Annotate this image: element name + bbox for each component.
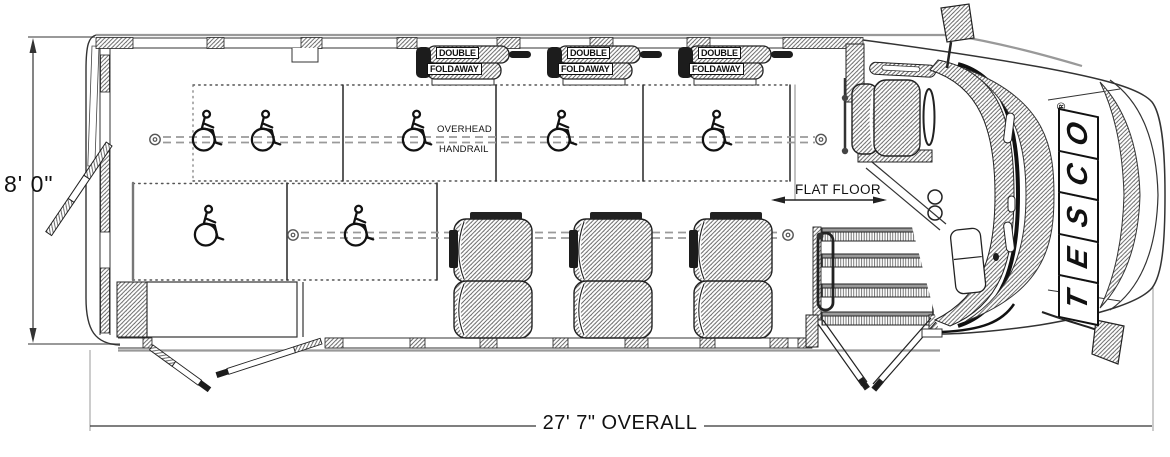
roof-notch: [292, 48, 318, 62]
wheelchair-icon: [193, 111, 221, 151]
overhead-handrail-label-line2: HANDRAIL: [439, 145, 489, 155]
wheelchair-icon: [345, 206, 373, 246]
entry-doors-open: [818, 318, 936, 391]
track-end-icon: [783, 230, 793, 240]
rear-body: [86, 35, 120, 345]
driver-seat: [852, 80, 932, 162]
length-dimension-label: 27' 7" OVERALL: [540, 412, 700, 435]
foldaway-seat-label: FOLDAWAY: [689, 63, 744, 75]
wheelchair-lift-area: [117, 282, 303, 337]
overhead-handrail-label-line1: OVERHEAD: [437, 125, 492, 135]
double-seat: [569, 212, 652, 338]
foldaway-seat-label: FOLDAWAY: [558, 63, 613, 75]
double-seat: [689, 212, 772, 338]
brand-letter: O: [1058, 108, 1099, 161]
brand-logo: TESCO ®: [1058, 70, 1100, 322]
bus-floor-plan: 8' 0" 27' 7" OVERALL OVERHEAD HANDRAIL F…: [0, 0, 1170, 457]
wheelchair-icon: [548, 111, 576, 151]
wheelchair-icon: [195, 206, 223, 246]
flat-floor-label: FLAT FLOOR: [795, 182, 881, 197]
track-end-icon: [288, 230, 298, 240]
foldaway-seat-label: DOUBLE: [567, 47, 610, 59]
foldaway-seat-label: DOUBLE: [436, 47, 479, 59]
wheelchair-icon: [252, 111, 280, 151]
steering-wheel: [924, 89, 935, 145]
wheelchair-icon: [403, 111, 431, 151]
wheelchair-icon: [703, 111, 731, 151]
double-seat: [449, 212, 532, 338]
track-end-icon: [150, 134, 160, 144]
flat-floor-arrow: [771, 197, 887, 204]
entry-door-window: [950, 228, 987, 295]
brand-letters: TESCO: [1058, 115, 1099, 323]
foldaway-seat-label: FOLDAWAY: [427, 63, 482, 75]
height-dimension-label: 8' 0": [4, 171, 54, 198]
cab-front: [842, 4, 1165, 364]
lift-doors-open: [149, 338, 322, 392]
foldaway-seat-label: DOUBLE: [698, 47, 741, 59]
track-end-icon: [816, 134, 826, 144]
